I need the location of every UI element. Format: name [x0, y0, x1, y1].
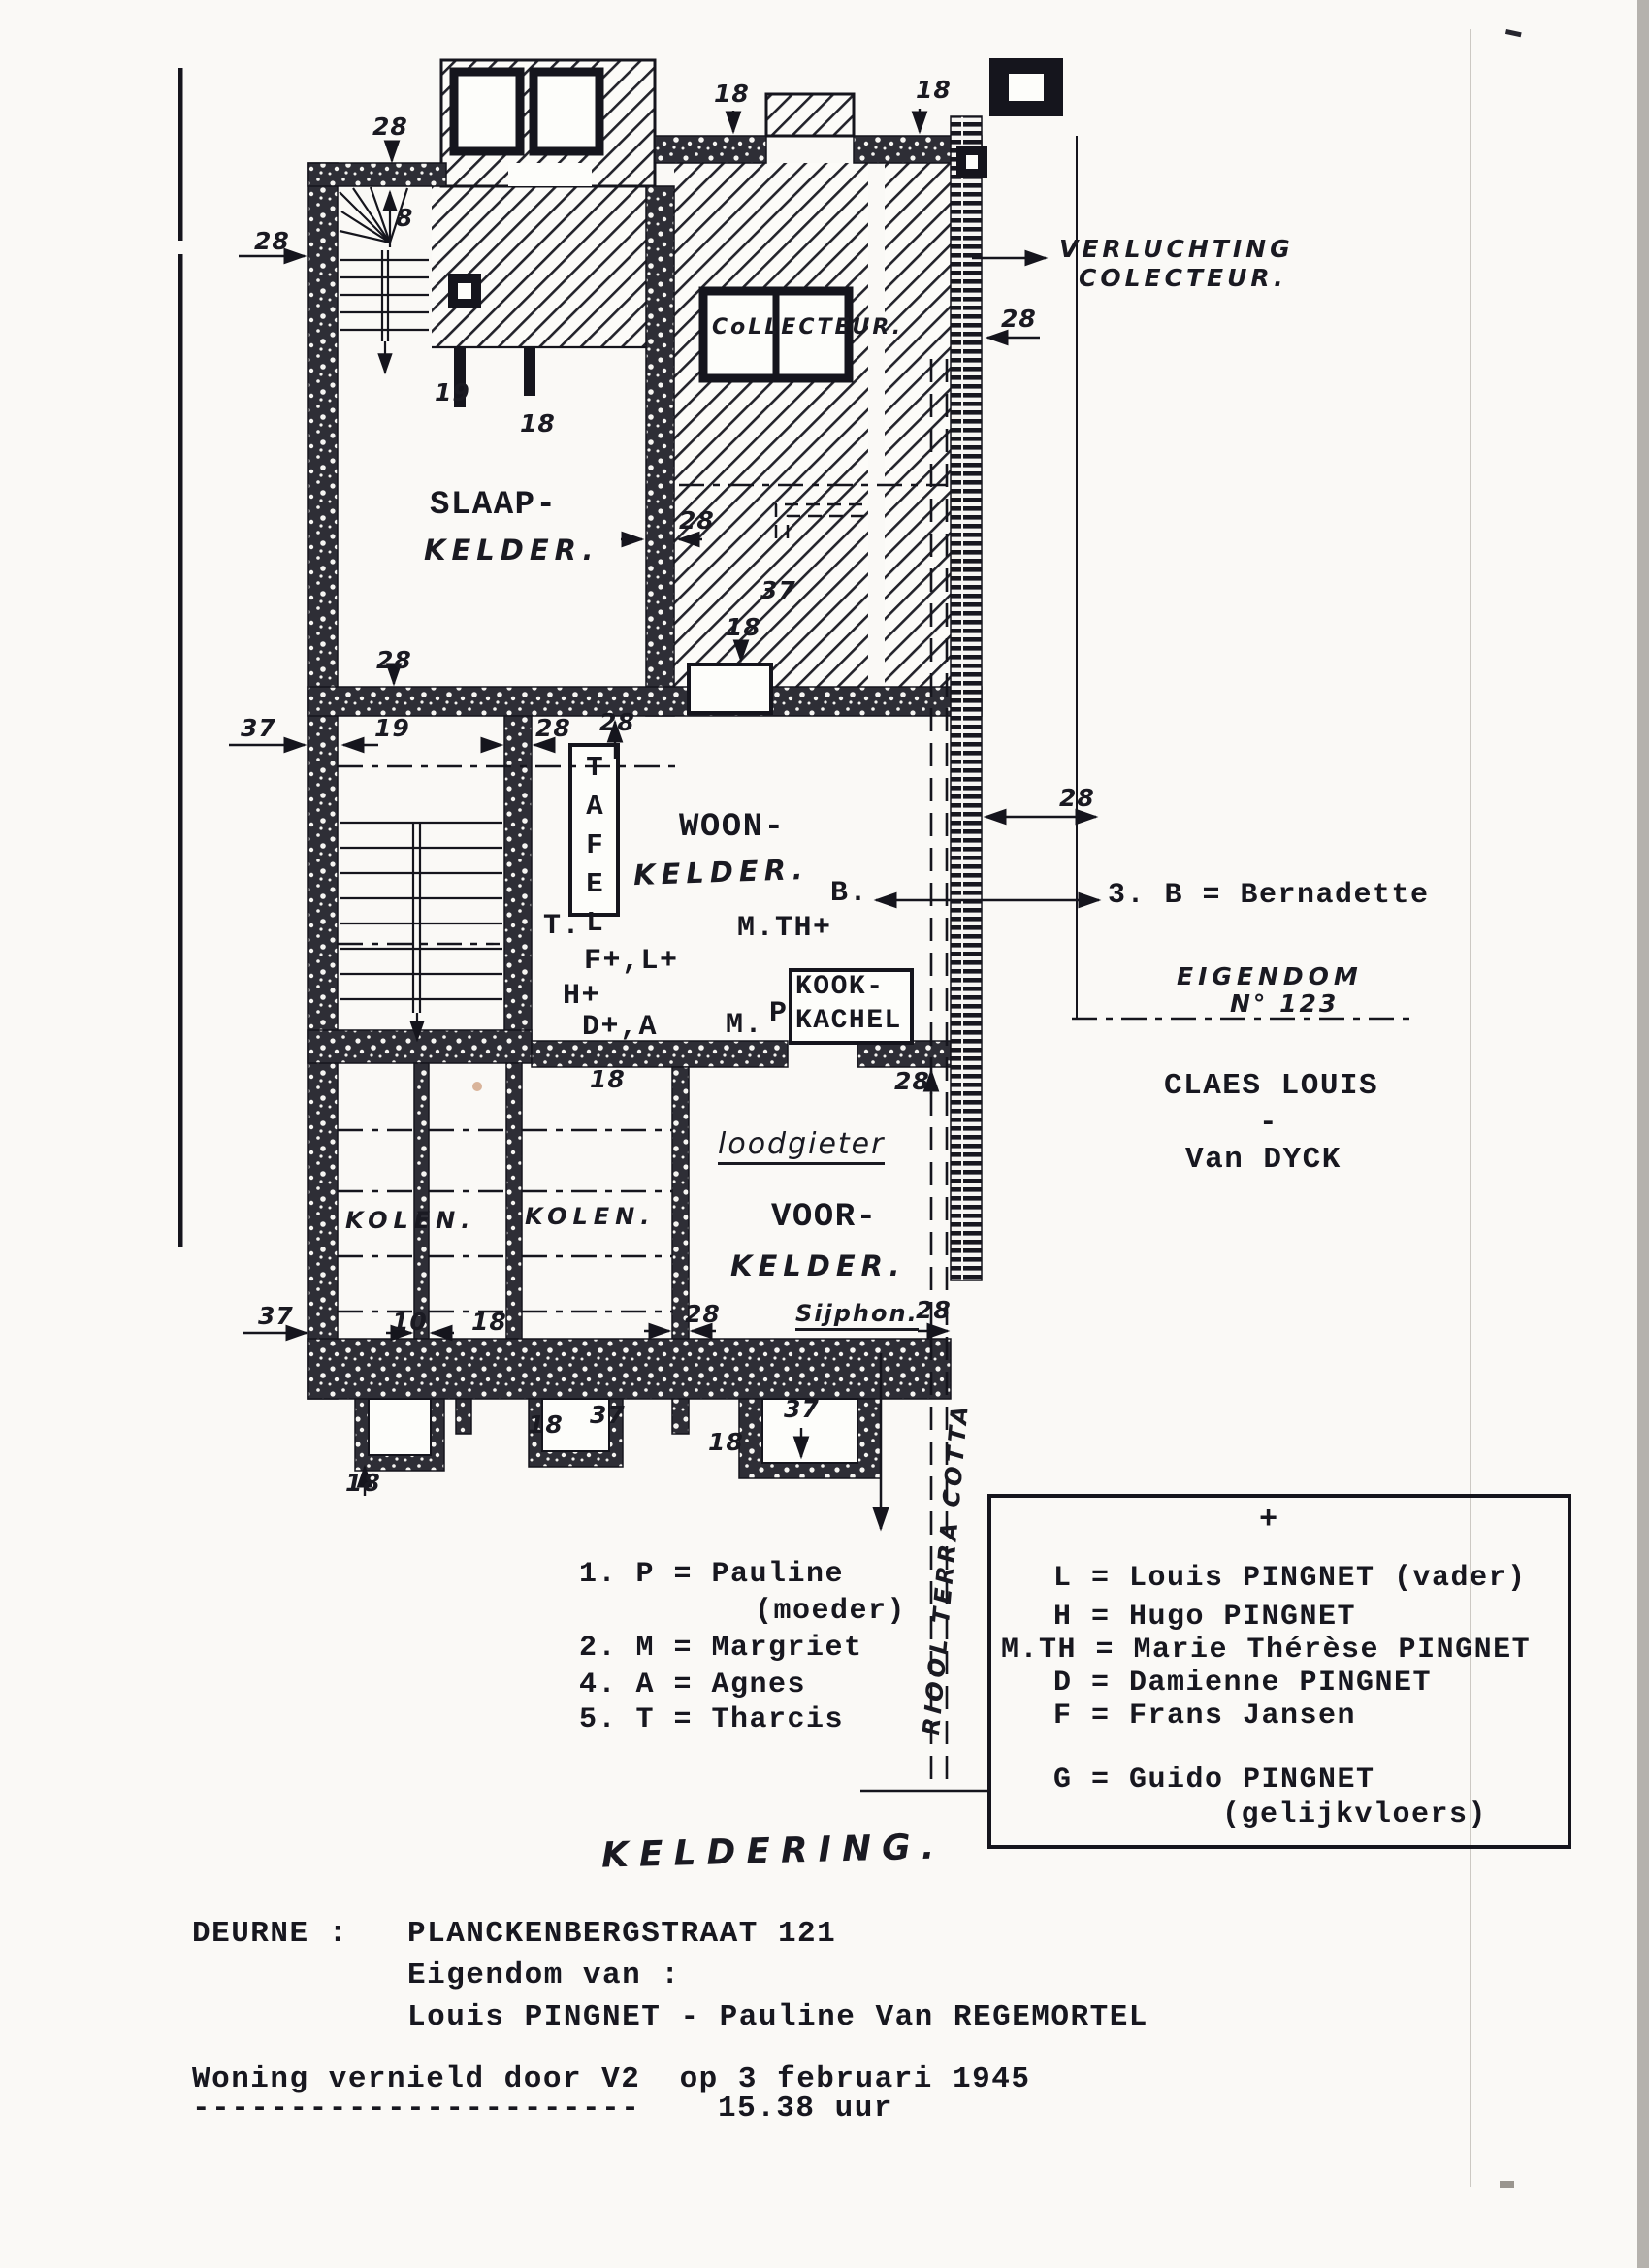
dimension-label: 28: [894, 1069, 930, 1094]
room-label-voorkelder-line1: VOOR-: [771, 1201, 878, 1236]
dimension-label: 28: [685, 1302, 721, 1327]
legend-box-item-damienne: D = Damienne PINGNET: [1053, 1669, 1432, 1700]
room-label-woonkelder-line1: WOON-: [679, 811, 786, 846]
legend-left-item-agnes: 4. A = Agnes: [579, 1670, 806, 1701]
legend-box-item-louis: L = Louis PINGNET (vader): [1053, 1564, 1527, 1595]
neighbor-owner-line1: CLAES LOUIS: [1164, 1071, 1378, 1103]
dimension-label: 28: [254, 229, 290, 254]
dimension-label: 19: [374, 716, 410, 741]
verluchting-note-line2: COLECTEUR.: [1079, 266, 1287, 291]
dimension-label: 18: [708, 1430, 744, 1455]
dimension-label: 28: [1059, 786, 1095, 811]
dimension-label: 28: [372, 114, 408, 140]
scanned-floor-plan-page: SLAAP- KELDER. WOON- KELDER. VOOR- KELDE…: [0, 0, 1649, 2268]
dimension-label: 18: [590, 1067, 626, 1092]
eigendom-note-line2: N° 123: [1230, 991, 1339, 1017]
neighbor-owner-line2: Van DYCK: [1185, 1145, 1342, 1177]
footer-street: PLANCKENBERGSTRAAT 121: [407, 1919, 836, 1951]
table-label: TAFEL: [579, 752, 608, 946]
family-legend-box: + L = Louis PINGNET (vader) H = Hugo PIN…: [987, 1494, 1571, 1849]
dimension-label: 37: [241, 716, 276, 741]
stove-label-line2: KACHEL: [795, 1007, 902, 1035]
dimension-label: 19: [435, 380, 470, 405]
footer-city-label: DEURNE :: [192, 1919, 348, 1951]
room-label-kolen-2: KOLEN.: [525, 1205, 655, 1229]
footer-time: 15.38 uur: [718, 2093, 893, 2125]
dimension-label: 18: [916, 78, 952, 103]
dimension-label: 8: [396, 206, 413, 231]
legend-left-item-margriet: 2. M = Margriet: [579, 1634, 863, 1665]
dimension-label: 18: [471, 1310, 507, 1335]
dimension-label: 18: [520, 411, 556, 437]
dimension-label: 28: [535, 716, 571, 741]
room-label-voorkelder-line2: KELDER.: [730, 1251, 906, 1280]
occupant-mark-mth: M.TH+: [737, 914, 832, 945]
occupant-mark-fl: F+,L+: [584, 947, 679, 978]
collecteur-label: CoLLECTEUR.: [712, 316, 903, 339]
footer-owners: Louis PINGNET - Pauline Van REGEMORTEL: [407, 2002, 1148, 2034]
dimension-label: 18: [528, 1412, 564, 1438]
footer-ownership-label: Eigendom van :: [407, 1960, 680, 1993]
stairs-main: [339, 823, 502, 1040]
room-label-slaapkelder-line2: KELDER.: [424, 535, 599, 565]
occupant-mark-b: B.: [830, 879, 868, 910]
verluchting-note-line1: VERLUCHTING: [1059, 237, 1294, 262]
legend-left-item-pauline: 1. P = Pauline: [579, 1560, 844, 1591]
neighbor-owner-dash: -: [1259, 1108, 1278, 1140]
legend-left-item-moeder: (moeder): [755, 1597, 906, 1628]
dimension-label: 37: [784, 1397, 820, 1422]
drawing-title: KELDERING.: [601, 1829, 946, 1874]
legend-left-item-tharcis: 5. T = Tharcis: [579, 1705, 844, 1736]
siphon-label: Sijphon.: [795, 1302, 919, 1331]
party-wall: [951, 116, 982, 1280]
dimension-label: 18: [345, 1471, 381, 1496]
dimension-label: 28: [916, 1298, 952, 1323]
room-label-woonkelder-line2: KELDER.: [633, 855, 809, 891]
footer-dashes: -----------------------: [192, 2093, 640, 2125]
room-label-slaapkelder-line1: SLAAP-: [430, 489, 557, 524]
plumber-note: loodgieter: [718, 1129, 885, 1165]
legend-box-item-hugo: H = Hugo PINGNET: [1053, 1603, 1356, 1634]
legend-box-item-gelijkvloers: (gelijkvloers): [1222, 1800, 1487, 1831]
occupant-mark-da: D+,A: [582, 1013, 658, 1044]
legend-box-item-guido: G = Guido PINGNET: [1053, 1766, 1375, 1797]
dimension-label: 18: [714, 81, 750, 107]
occupant-mark-t: T.: [543, 912, 581, 943]
dimension-label: 28: [376, 648, 412, 673]
dimension-label: 28: [1001, 307, 1037, 332]
dimension-label: 10: [392, 1310, 428, 1335]
dimension-label: 37: [590, 1403, 626, 1428]
dimension-label: 28: [679, 508, 715, 534]
legend-box-item-frans: F = Frans Jansen: [1053, 1701, 1356, 1733]
bernadette-note: 3. B = Bernadette: [1108, 881, 1430, 912]
dimension-label: 18: [726, 615, 761, 640]
dimension-label: 28: [599, 710, 635, 735]
eigendom-note-line1: EIGENDOM: [1177, 964, 1363, 989]
room-label-kolen-1: KOLEN.: [345, 1209, 475, 1233]
dimension-label: 37: [258, 1304, 294, 1329]
legend-box-plus-mark: +: [1259, 1504, 1279, 1537]
stove-label-line1: KOOK-: [795, 973, 885, 1001]
occupant-mark-h: H+: [563, 982, 600, 1013]
dimension-label: 37: [760, 578, 796, 603]
legend-box-item-marie-therese: M.TH = Marie Thérèse PINGNET: [1001, 1636, 1531, 1667]
occupant-mark-p: P: [769, 999, 789, 1030]
occupant-mark-m: M.: [726, 1011, 763, 1042]
